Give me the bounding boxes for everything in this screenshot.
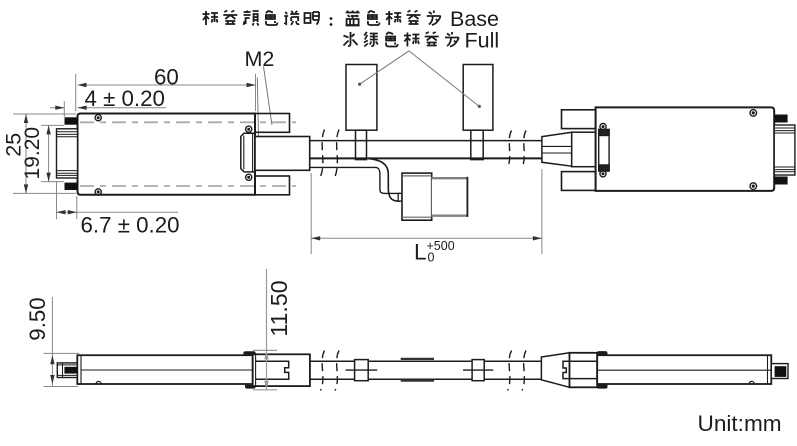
svg-text:11.50: 11.50 (266, 280, 292, 336)
svg-text:0: 0 (428, 251, 435, 265)
svg-text:6.7 ± 0.20: 6.7 ± 0.20 (81, 213, 180, 238)
svg-text:Unit:mm: Unit:mm (698, 411, 782, 436)
svg-text:9.50: 9.50 (25, 297, 50, 340)
svg-text:4 ± 0.20: 4 ± 0.20 (85, 86, 165, 111)
svg-text:L: L (414, 240, 427, 265)
svg-text:19.20: 19.20 (21, 127, 44, 180)
svg-text:M2: M2 (245, 47, 275, 71)
svg-text:Full: Full (465, 28, 500, 52)
